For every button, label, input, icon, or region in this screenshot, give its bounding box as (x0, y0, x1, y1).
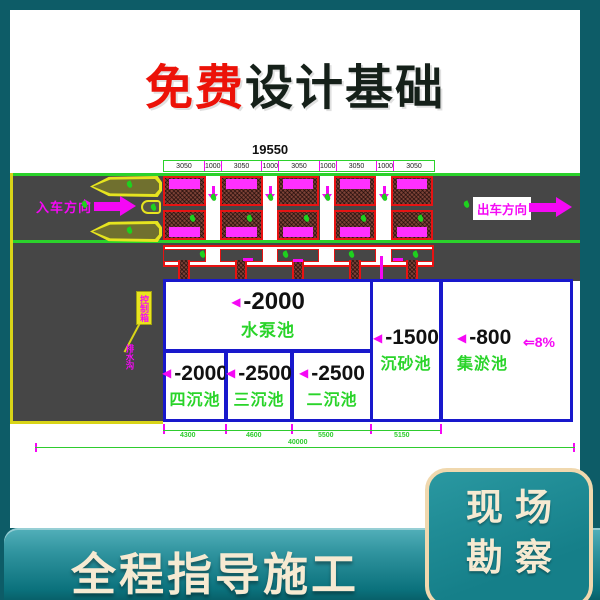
dimension-chain-top: 305010003050100030501000305010003050 (163, 160, 435, 172)
drain-pillar (178, 260, 190, 281)
exit-direction-label: 出车方向 (473, 197, 531, 220)
entry-arrow-head-icon (120, 196, 136, 216)
dim-segment-label: 3050 (336, 161, 377, 171)
title-rest: 设计基础 (245, 62, 445, 115)
dimension-value: 5500 (318, 432, 334, 439)
drain-note-label: 排水沟 (124, 344, 136, 370)
dim-segment-label: 1000 (376, 161, 393, 171)
wash-bay-block (163, 210, 206, 240)
dim-tick (291, 424, 293, 434)
dim-segment-label: 1000 (204, 161, 221, 171)
drain-pillar (406, 260, 418, 281)
pool-two: ◀-2500 二沉池 (291, 350, 373, 422)
dim-segment-label: 1000 (261, 161, 278, 171)
marker-triangle-icon: ◀ (373, 332, 382, 344)
pool-three: ◀-2500 三沉池 (225, 350, 293, 422)
wash-bay-block (391, 210, 434, 240)
bay-cap (283, 179, 314, 189)
title-highlight: 免费 (145, 62, 245, 115)
bay-cap (169, 179, 200, 189)
bay-cap (226, 227, 257, 237)
pool-name: 水泵池 (241, 316, 295, 341)
bay-cap (169, 227, 200, 237)
dim-tick (163, 424, 165, 434)
bay-cap (340, 227, 371, 237)
wash-bay-block (391, 176, 434, 206)
wash-bay-block (163, 176, 206, 206)
pool-name: 集淤池 (457, 350, 508, 374)
bay-cap (340, 179, 371, 189)
badge-line-2: 勘察 (454, 536, 564, 580)
pool-depth: -1500 (385, 327, 439, 348)
traffic-island-fill (93, 224, 159, 239)
dimension-line-pools (163, 430, 440, 431)
flow-dash (243, 258, 253, 261)
exit-arrow-head-icon (556, 197, 572, 217)
pool-depth: -2000 (243, 290, 304, 314)
dim-segment-label: 3050 (278, 161, 319, 171)
pool-pump: ◀-2000 水泵池 (163, 279, 373, 352)
pool-depth: -2500 (311, 363, 365, 384)
dim-tick (440, 424, 442, 434)
dimension-value: 5150 (394, 432, 410, 439)
marker-triangle-icon: ◀ (231, 296, 240, 308)
flow-dash (293, 259, 303, 262)
drain-pillar (292, 260, 304, 281)
wash-bay-block (277, 176, 320, 206)
dim-tick (370, 424, 372, 434)
bay-cap (283, 227, 314, 237)
site-boundary-line (10, 173, 13, 422)
pool-four: ◀-2000 四沉池 (163, 350, 227, 422)
dim-tick (225, 424, 227, 434)
page-title: 免费设计基础 (10, 48, 580, 118)
corner-badge: 现场 勘察 (425, 468, 593, 600)
dimension-value: 4600 (246, 432, 262, 439)
pool-name: 三沉池 (233, 386, 284, 410)
badge-line-1: 现场 (454, 486, 564, 530)
dim-segment-label: 1000 (319, 161, 336, 171)
dimension-line-total (35, 447, 575, 448)
dim-segment-label: 3050 (221, 161, 262, 171)
pool-name: 二沉池 (306, 386, 357, 410)
wash-bay-block (334, 210, 377, 240)
wash-bay-block (220, 176, 263, 206)
marker-triangle-icon: ◀ (457, 332, 466, 344)
wash-bay-block (277, 210, 320, 240)
dimension-total-bottom: 40000 (288, 439, 307, 446)
pool-name: 沉砂池 (380, 350, 431, 374)
promo-page: 免费设计基础 19550 305010003050100030501000305… (0, 0, 600, 600)
bottom-banner-text: 全程指导施工 (30, 538, 400, 600)
pool-depth: -800 (469, 327, 511, 348)
dim-segment-label: 3050 (164, 161, 204, 171)
drain-pillar (349, 260, 361, 281)
slope-label: ⇐8% (523, 334, 555, 351)
entry-arrow-icon (94, 202, 120, 211)
flow-dash (393, 258, 403, 261)
pool-sand: ◀-1500 沉砂池 (370, 279, 442, 422)
drain-pillar (235, 260, 247, 281)
pool-depth: -2000 (174, 363, 228, 384)
dimension-value: 4300 (180, 432, 196, 439)
bay-cap (397, 227, 428, 237)
marker-triangle-icon: ◀ (299, 367, 308, 379)
dim-segment-label: 3050 (393, 161, 434, 171)
wash-bay-block (220, 210, 263, 240)
pool-depth: -2500 (238, 363, 292, 384)
pool-name: 四沉池 (169, 386, 220, 410)
marker-triangle-icon: ◀ (162, 367, 171, 379)
marker-triangle-icon: ◀ (226, 367, 235, 379)
control-box-label: 控制箱 (136, 291, 152, 325)
wash-bay-block (334, 176, 377, 206)
dimension-total-top: 19550 (252, 142, 288, 157)
bay-cap (226, 179, 257, 189)
exit-arrow-icon (529, 203, 556, 212)
bay-cap (397, 179, 428, 189)
